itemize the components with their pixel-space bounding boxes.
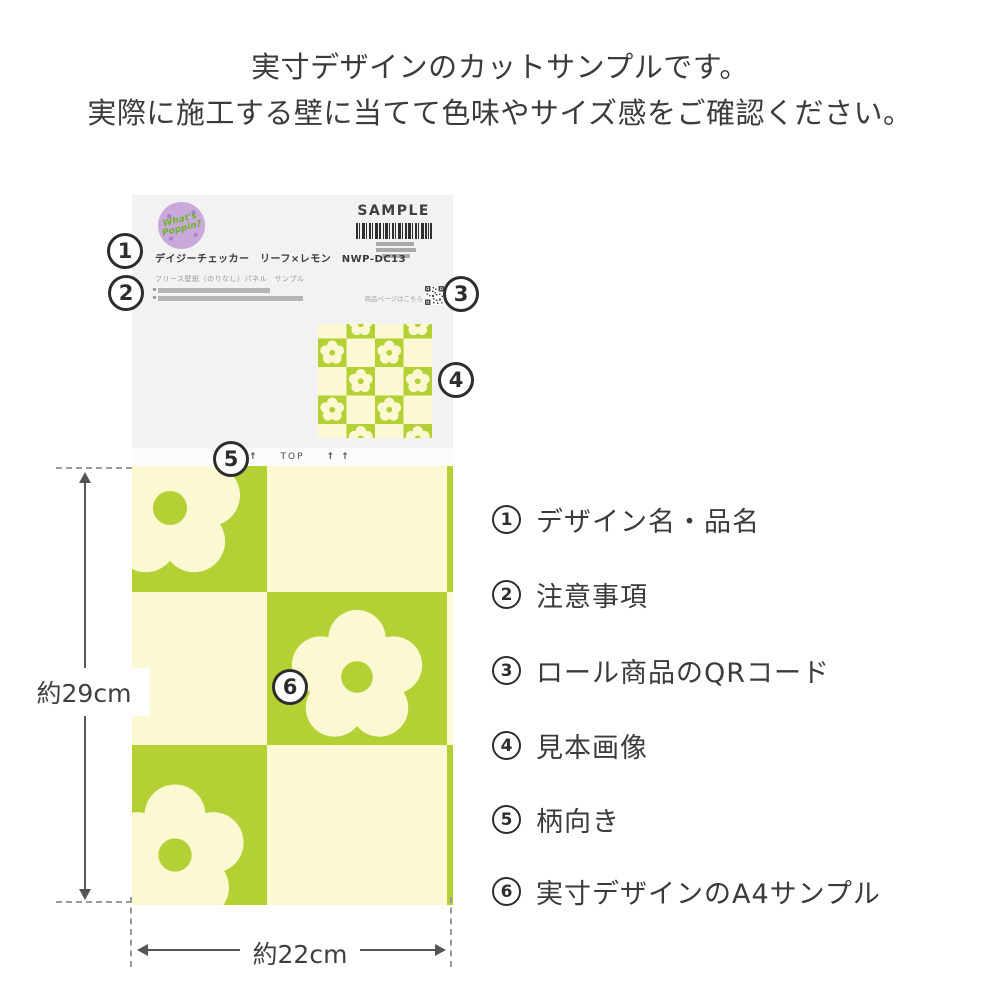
arrow-left-icon	[137, 944, 148, 956]
intro-text-line2: 実際に施工する壁に当てて色味やサイズ感をご確認ください。	[0, 90, 1000, 132]
legend-item-2: 2 注意事項	[492, 575, 648, 614]
brand-badge-text: What's Poppin?	[160, 211, 204, 239]
callout-5: 5	[213, 441, 249, 477]
legend-label-1: デザイン名・品名	[536, 500, 760, 539]
callout-2: 2	[108, 275, 144, 311]
arrow-right-icon	[435, 944, 446, 956]
legend-item-6: 6 実寸デザインのA4サンプル	[492, 872, 881, 911]
qr-code	[425, 286, 444, 305]
dimension-dashed-line-right	[450, 897, 452, 967]
arrow-down-icon	[79, 889, 91, 900]
note-redacted-line	[158, 288, 270, 293]
arrow-up-icon	[79, 472, 91, 483]
callout-4: 4	[438, 362, 474, 398]
pattern-thumbnail	[318, 324, 432, 438]
legend-item-5: 5 柄向き	[492, 800, 620, 839]
note-bullet	[153, 288, 156, 291]
barcode	[356, 223, 432, 239]
dimension-dashed-line-top	[56, 467, 132, 469]
legend-label-5: 柄向き	[536, 800, 620, 839]
qr-caption: 商品ページはこちら	[312, 293, 423, 303]
orientation-strip: ↑ ↑ TOP ↑ ↑	[132, 448, 453, 466]
legend-number-3: 3	[492, 656, 521, 685]
note-bullet	[153, 296, 156, 299]
legend-item-3: 3 ロール商品のQRコード	[492, 651, 830, 690]
barcode-text-bar	[376, 242, 414, 246]
legend-label-6: 実寸デザインのA4サンプル	[536, 872, 881, 911]
up-arrows-icon: ↑ ↑	[327, 452, 351, 462]
intro-text-line1: 実寸デザインのカットサンプルです。	[0, 44, 1000, 86]
note-redacted-line	[158, 296, 303, 301]
callout-6: 6	[272, 669, 308, 705]
dimension-dashed-line-left	[130, 897, 132, 967]
legend-item-1: 1 デザイン名・品名	[492, 500, 760, 539]
sample-label: SAMPLE	[318, 203, 430, 219]
width-dimension-label: 約22cm	[240, 935, 360, 971]
dimension-dashed-line-bottom	[56, 901, 132, 903]
legend-number-5: 5	[492, 805, 521, 834]
sample-card: What's Poppin? SAMPLE デイジーチェッカー リーフ×レモン …	[132, 195, 453, 905]
legend-number-4: 4	[492, 731, 521, 760]
legend-number-2: 2	[492, 580, 521, 609]
orientation-label: TOP	[280, 452, 304, 462]
brand-badge: What's Poppin?	[158, 202, 205, 249]
product-title: デイジーチェッカー リーフ×レモン NWP-DC13	[155, 250, 445, 265]
height-dimension-label: 約29cm	[18, 668, 150, 716]
legend-number-1: 1	[492, 505, 521, 534]
callout-3: 3	[443, 276, 479, 312]
callout-1: 1	[107, 233, 143, 269]
product-subtitle: フリース壁紙（のりなし）パネル サンプル	[155, 274, 445, 284]
legend-label-4: 見本画像	[536, 726, 648, 765]
legend-item-4: 4 見本画像	[492, 726, 648, 765]
legend-label-2: 注意事項	[536, 575, 648, 614]
legend-label-3: ロール商品のQRコード	[536, 651, 830, 690]
legend-number-6: 6	[492, 877, 521, 906]
